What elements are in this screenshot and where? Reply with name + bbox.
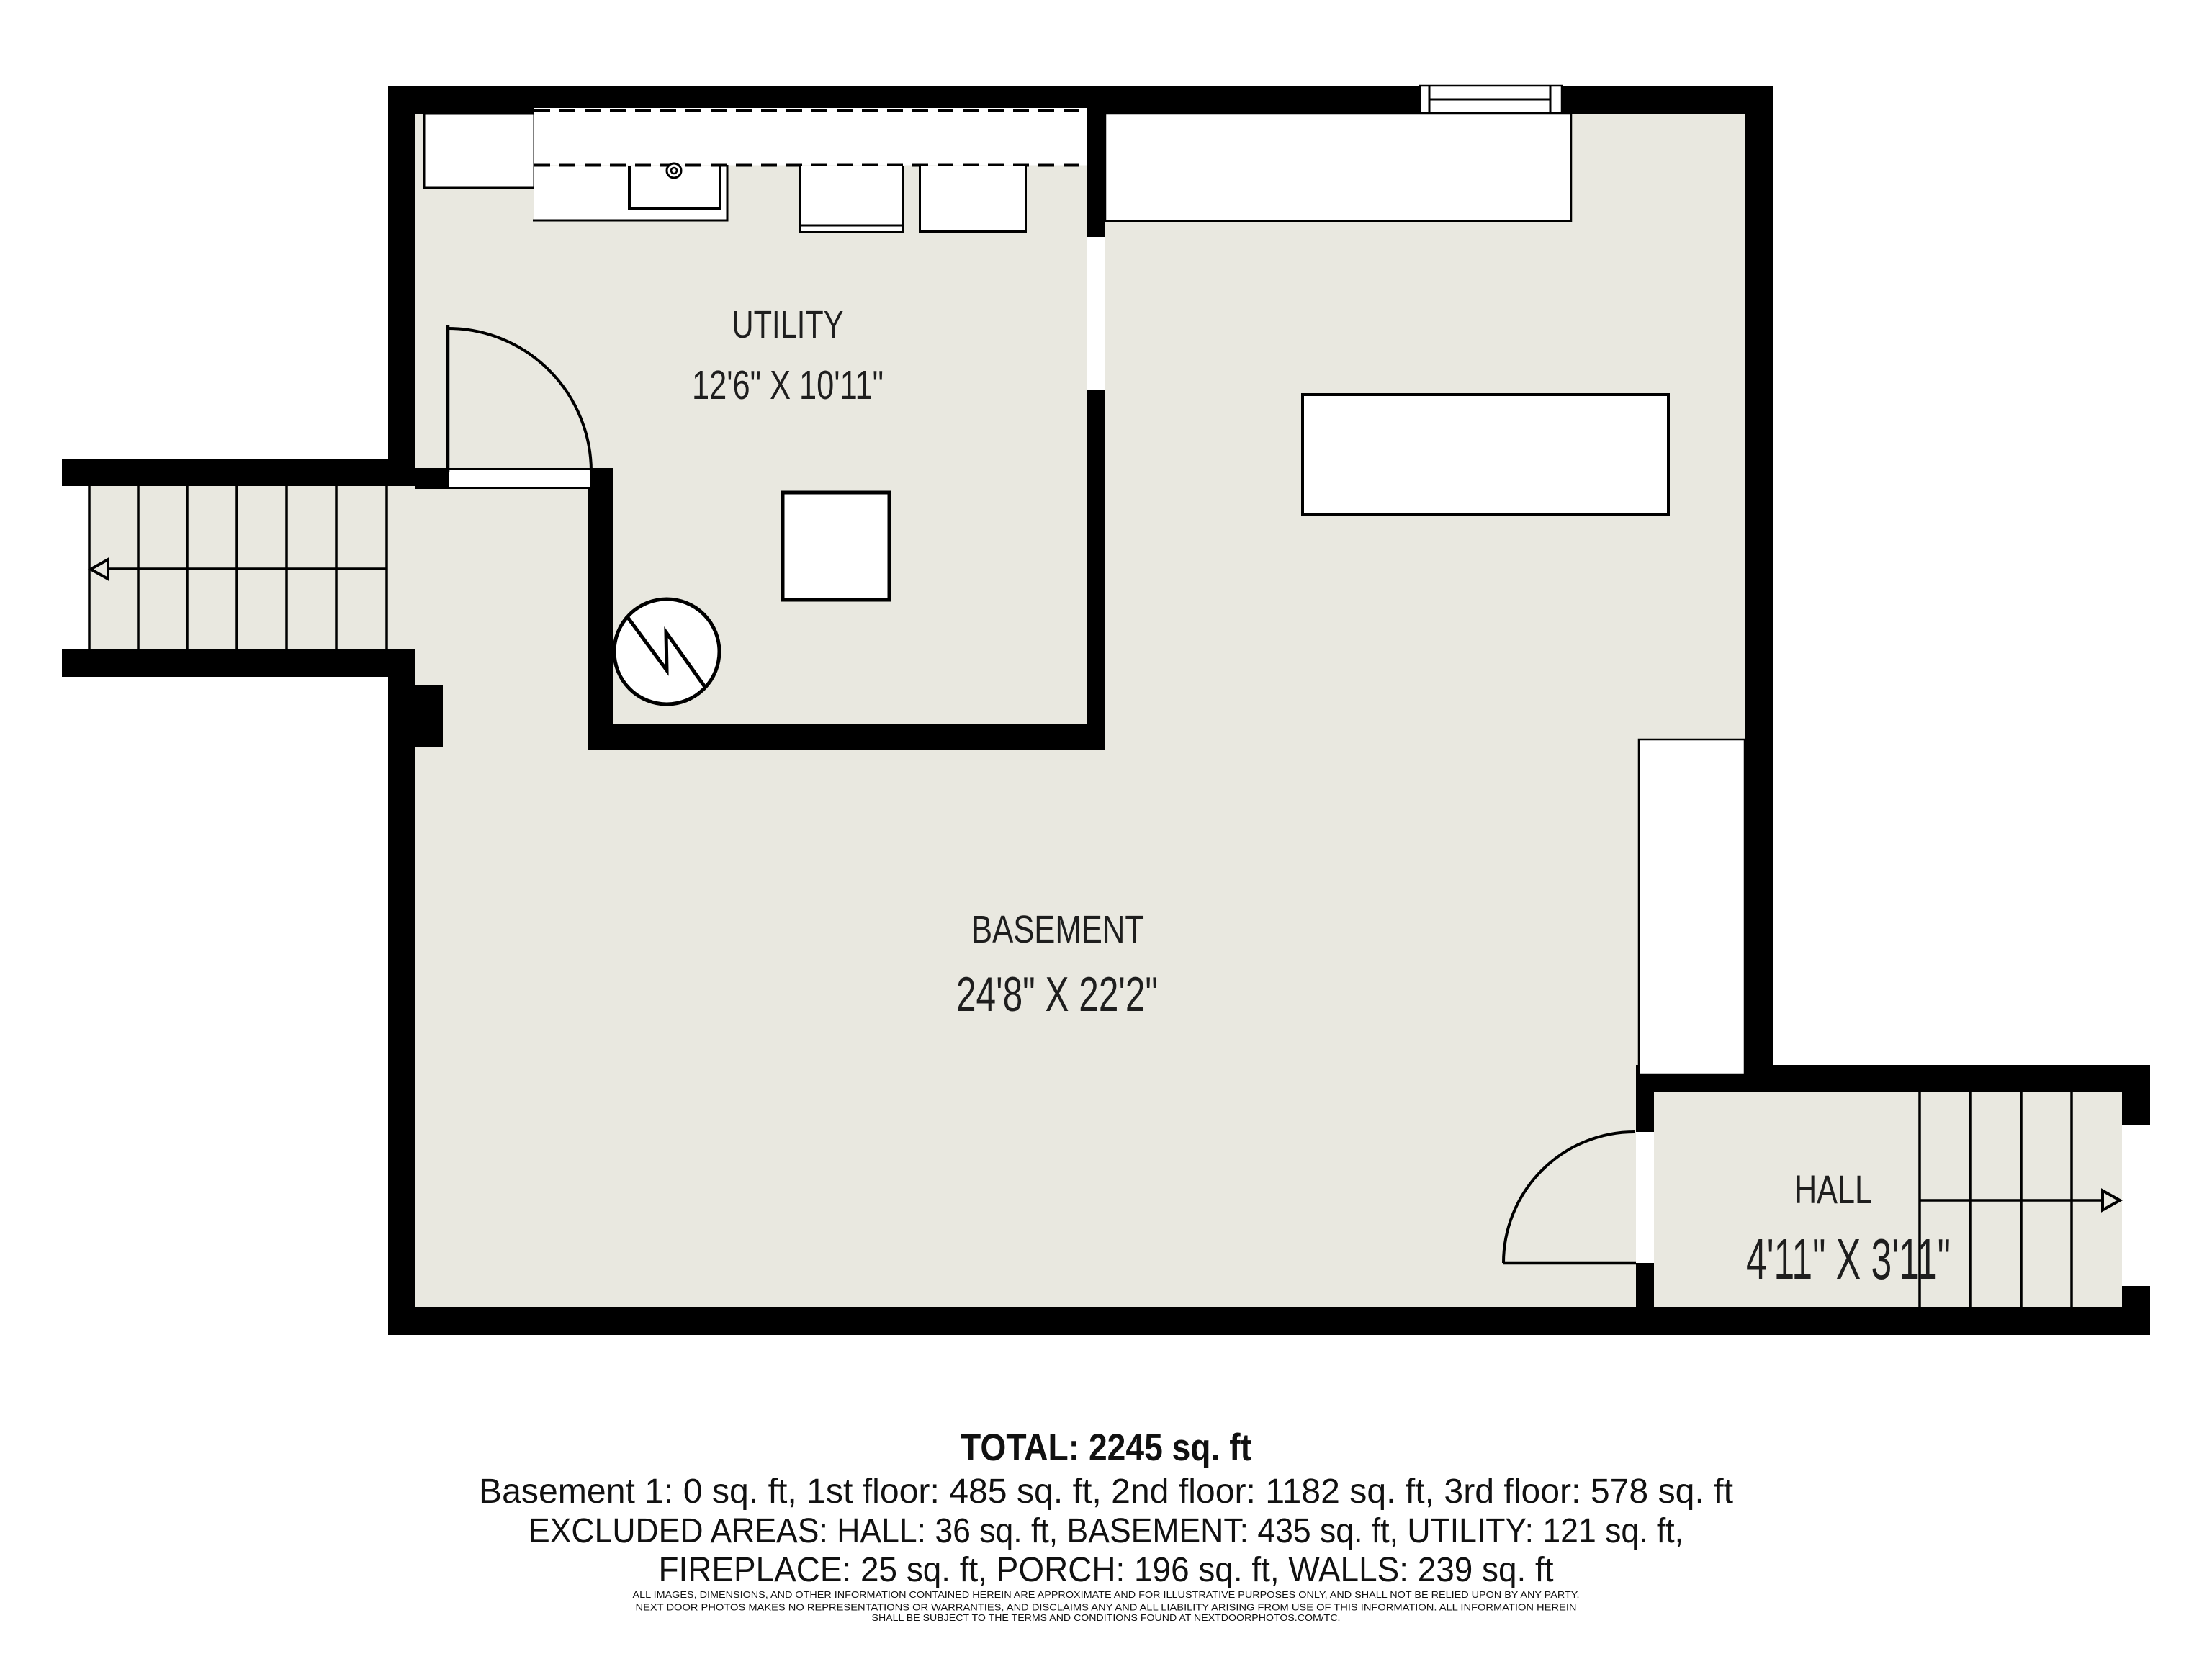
svg-text:Basement 1: 0 sq. ft, 1st floo: Basement 1: 0 sq. ft, 1st floor: 485 sq.… [479, 1473, 1733, 1511]
svg-text:NEXT DOOR PHOTOS MAKES NO REPR: NEXT DOOR PHOTOS MAKES NO REPRESENTATION… [636, 1602, 1577, 1613]
svg-text:FIREPLACE: 25 sq. ft, PORCH: 1: FIREPLACE: 25 sq. ft, PORCH: 196 sq. ft,… [659, 1551, 1554, 1589]
svg-text:UTILITY: UTILITY [732, 303, 844, 346]
svg-text:HALL: HALL [1794, 1166, 1872, 1212]
svg-text:ALL IMAGES, DIMENSIONS, AND OT: ALL IMAGES, DIMENSIONS, AND OTHER INFORM… [633, 1589, 1580, 1600]
svg-text:EXCLUDED AREAS: HALL: 36 sq. f: EXCLUDED AREAS: HALL: 36 sq. ft, BASEMEN… [529, 1512, 1683, 1550]
svg-text:12'6" X 10'11": 12'6" X 10'11" [692, 362, 884, 408]
svg-text:BASEMENT: BASEMENT [971, 908, 1144, 951]
svg-text:24'8" X 22'2": 24'8" X 22'2" [956, 967, 1158, 1022]
svg-text:TOTAL: 2245 sq. ft: TOTAL: 2245 sq. ft [961, 1426, 1251, 1469]
svg-text:4'11" X 3'11": 4'11" X 3'11" [1746, 1227, 1951, 1291]
svg-text:SHALL BE SUBJECT TO THE TERMS: SHALL BE SUBJECT TO THE TERMS AND CONDIT… [872, 1612, 1341, 1623]
